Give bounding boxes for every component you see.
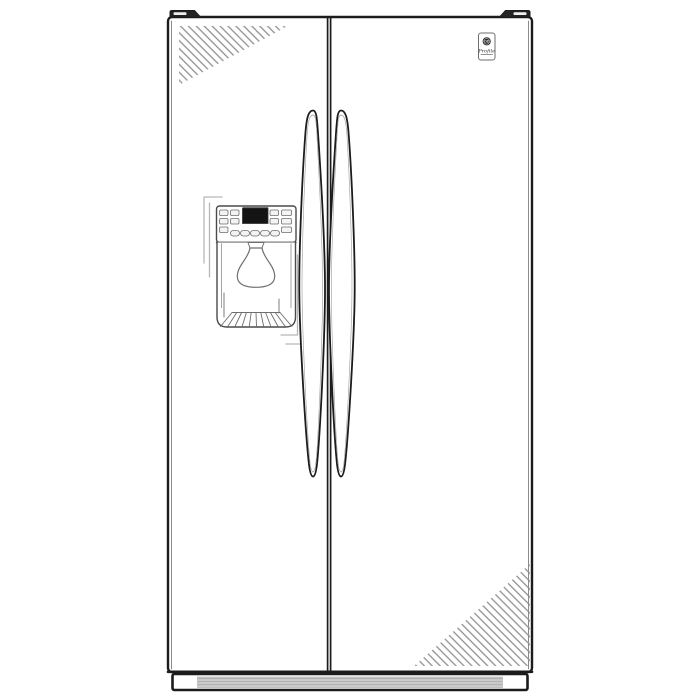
dispenser-button bbox=[220, 210, 229, 216]
refrigerator-illustration: GE Profile bbox=[0, 0, 700, 700]
dispenser-button bbox=[282, 219, 292, 225]
ge-monogram-text: GE bbox=[484, 40, 490, 44]
top-hinge-right bbox=[500, 11, 531, 18]
dispenser-button bbox=[270, 210, 279, 216]
dispenser-button bbox=[251, 231, 260, 237]
dispenser-button bbox=[241, 231, 250, 237]
dispenser-lcd-display bbox=[243, 208, 269, 224]
dispenser-button bbox=[282, 210, 292, 216]
brand-badge: GE Profile bbox=[477, 33, 495, 60]
badge-plate bbox=[479, 33, 496, 60]
ice-water-dispenser bbox=[217, 206, 297, 327]
dispenser-button bbox=[231, 210, 240, 216]
badge-series-text: Profile bbox=[477, 49, 495, 55]
paddle-mount bbox=[248, 243, 264, 249]
kickplate bbox=[168, 672, 532, 690]
hinge-highlight bbox=[514, 12, 527, 15]
hinge-highlight bbox=[174, 12, 187, 15]
kickplate-vent-grille bbox=[198, 677, 503, 688]
dispenser-button bbox=[270, 219, 279, 225]
dispenser-button bbox=[271, 231, 280, 237]
dispenser-button bbox=[261, 231, 270, 237]
dispenser-button bbox=[231, 231, 240, 237]
dispenser-button bbox=[231, 219, 240, 225]
dispenser-button bbox=[220, 219, 229, 225]
dispenser-button bbox=[220, 227, 229, 233]
refrigerator-product-image: GE Profile bbox=[0, 0, 700, 700]
dispenser-button bbox=[282, 227, 292, 233]
top-hinge-left bbox=[170, 11, 201, 18]
